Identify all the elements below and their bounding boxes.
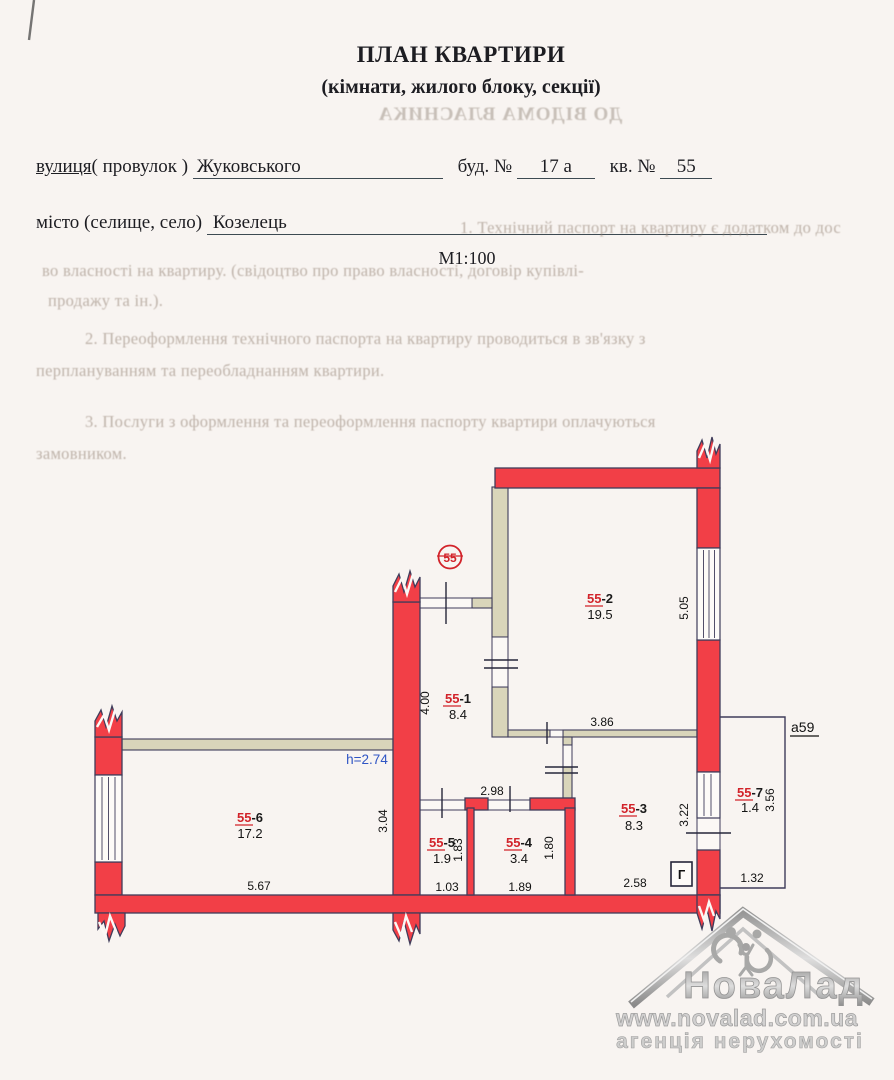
ceiling-height-note: h=2.74: [346, 752, 388, 767]
scan-artifact: [29, 0, 34, 40]
dimension-label: 3.56: [763, 788, 777, 812]
room-label-55-7: 55-7 1.4: [735, 785, 763, 815]
svg-text:55-3: 55-3: [621, 801, 647, 816]
svg-text:1.9: 1.9: [433, 851, 451, 866]
floor-plan-canvas: НоваЛад www.novalad.com.ua агенція нерух…: [0, 0, 894, 1080]
main-walls: [95, 468, 720, 913]
dimension-label: 3.22: [677, 803, 691, 827]
dimension-label: 2.58: [623, 876, 647, 890]
annex-reference: a59: [790, 719, 819, 736]
svg-text:55-4: 55-4: [506, 835, 533, 850]
dimension-label: 1.83: [451, 838, 465, 862]
gas-meter-symbol: Г: [671, 862, 692, 886]
svg-text:55-7: 55-7: [737, 785, 763, 800]
dimension-label: 3.86: [590, 715, 614, 729]
watermark-url: www.novalad.com.ua: [615, 1005, 858, 1031]
dimension-label: 1.03: [435, 880, 459, 894]
room-label-55-6: 55-6 17.2: [235, 810, 263, 841]
window-icon: [95, 775, 122, 862]
svg-text:a59: a59: [791, 719, 815, 735]
dimension-label: 5.05: [677, 596, 691, 620]
watermark-brand: НоваЛад: [683, 965, 865, 1007]
floor-plan: 55 55-1 8.4 55-2 19.5 55-3 8.3 55-4: [95, 437, 819, 944]
room-label-55-2: 55-2 19.5: [585, 591, 613, 622]
dimension-label: 3.04: [376, 809, 390, 833]
svg-text:55-1: 55-1: [445, 691, 471, 706]
svg-text:Г: Г: [678, 867, 686, 882]
agency-watermark: НоваЛад www.novalad.com.ua агенція нерух…: [615, 909, 880, 1053]
svg-text:3.4: 3.4: [510, 851, 528, 866]
room-label-55-1: 55-1 8.4: [443, 691, 471, 722]
dimension-label: 1.80: [542, 836, 556, 860]
svg-text:55-6: 55-6: [237, 810, 263, 825]
svg-text:19.5: 19.5: [587, 607, 612, 622]
window-icon: [697, 772, 720, 818]
svg-text:1.4: 1.4: [741, 800, 759, 815]
watermark-tagline: агенція нерухомості: [616, 1030, 864, 1053]
dimension-label: 1.32: [740, 871, 764, 885]
svg-text:8.3: 8.3: [625, 818, 643, 833]
room-label-55-4: 55-4 3.4: [504, 835, 533, 866]
dimension-label: 5.67: [247, 879, 271, 893]
svg-text:8.4: 8.4: [449, 707, 467, 722]
window-icon: [697, 548, 720, 640]
dimension-label: 1.89: [508, 880, 532, 894]
svg-text:55-2: 55-2: [587, 591, 613, 606]
dimension-label: 4.00: [418, 691, 432, 715]
svg-text:55: 55: [443, 551, 457, 565]
room-label-55-3: 55-3 8.3: [619, 801, 647, 833]
dimension-label: 2.98: [480, 784, 504, 798]
apartment-number-badge: 55: [437, 546, 463, 569]
svg-text:17.2: 17.2: [237, 826, 262, 841]
